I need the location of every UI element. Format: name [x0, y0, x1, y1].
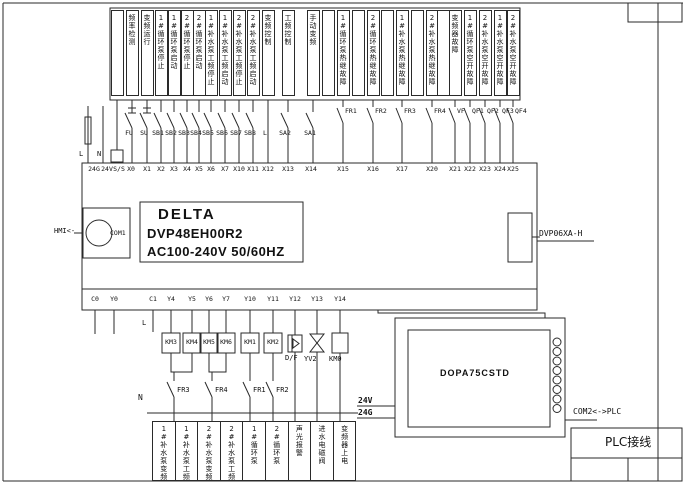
- input-terminal-label: X15: [333, 166, 353, 173]
- output-signal-label: 声光报警: [295, 425, 305, 457]
- com1-port-icon: [86, 220, 112, 246]
- expansion-module-box: [508, 213, 532, 262]
- signal-cell: 1#补水泵工频启动: [219, 10, 232, 96]
- switch-contact-icon: [246, 113, 253, 128]
- panel-key-icon: [553, 395, 561, 403]
- input-device-label: QF4: [515, 108, 527, 115]
- output-signal-cell: 变频器上电: [333, 421, 357, 481]
- panel-key-icon: [553, 405, 561, 413]
- panel-key-icon: [553, 338, 561, 346]
- title-block-title: PLC接线: [605, 436, 651, 448]
- panel-24v-label: 24V: [358, 397, 372, 405]
- valve-icon-bottom: [310, 343, 324, 352]
- switch-contact-icon: [281, 113, 288, 128]
- input-device-label: VF: [457, 108, 465, 115]
- output-signal-label: 1#循环泵: [249, 425, 259, 465]
- signal-cell-label: 频率检测: [127, 14, 137, 46]
- contactor-label: KM3: [162, 339, 180, 346]
- switch-contact-icon: [192, 113, 199, 128]
- switch-contact-icon: [154, 113, 161, 128]
- signal-cell-blank: [411, 10, 424, 96]
- panel-key-icon: [553, 367, 561, 375]
- output-signal-cell: 声光报警: [288, 421, 312, 481]
- output-signal-cell: 2#循环泵: [265, 421, 289, 481]
- panel-key-icon: [553, 348, 561, 356]
- output-n-label: N: [138, 394, 143, 402]
- input-device-label: FR4: [434, 108, 446, 115]
- df-label: D/F: [285, 355, 298, 362]
- input-device-label: QF3: [502, 108, 514, 115]
- output-terminal-label: Y0: [104, 296, 124, 303]
- output-signal-label: 2#补水泵工频: [227, 425, 237, 481]
- signal-cell-label: 2#补水泵工频启动: [248, 14, 258, 86]
- plc-power-rating: AC100-240V 50/60HZ: [147, 245, 285, 258]
- fr-contact-label: FR1: [253, 387, 266, 394]
- switch-contact-icon: [180, 113, 187, 128]
- input-device-label: SA1: [300, 130, 320, 137]
- fr-contact-label: FR3: [177, 387, 190, 394]
- panel-key-icon: [553, 376, 561, 384]
- signal-cell: 2#补水泵工频启动: [247, 10, 260, 96]
- contactor-label: KM5: [200, 339, 218, 346]
- signal-cell: 1#循环泵热继故障: [337, 10, 350, 96]
- alarm-speaker-cone: [293, 339, 299, 348]
- output-signal-label: 1#补水泵工频: [182, 425, 192, 481]
- signal-cell-label: 1#补水泵工频启动: [220, 14, 230, 86]
- output-l-label: L: [142, 320, 146, 327]
- switch-contact-icon: [232, 113, 239, 128]
- signal-cell-label: 2#循环泵停止: [182, 14, 192, 70]
- signal-cell: 变频器故障: [449, 10, 462, 96]
- input-terminal-label: X17: [392, 166, 412, 173]
- plc-panel-cable: [378, 310, 545, 318]
- signal-cell: 1#补水泵热继故障: [396, 10, 409, 96]
- signal-cell: 1#循环泵空开故障: [464, 10, 477, 96]
- panel-24g-label: 24G: [358, 409, 372, 417]
- signal-cell: 变频运行: [141, 10, 154, 96]
- signal-cell-label: 变频运行: [142, 14, 152, 46]
- contactor-label: KM4: [183, 339, 201, 346]
- fr2-contact-icon: [266, 382, 273, 397]
- signal-cell-label: 2#补水泵空开故障: [480, 14, 490, 86]
- output-terminal-label: Y4: [161, 296, 181, 303]
- relay-contact-icon: [396, 108, 402, 123]
- signal-cell-label: 1#循环泵启动: [169, 14, 179, 70]
- fr-contact-label: FR2: [276, 387, 289, 394]
- contactor-label: KM6: [217, 339, 235, 346]
- plc-brand: DELTA: [158, 207, 216, 222]
- signal-cell: 1#循环泵停止: [155, 10, 168, 96]
- signal-cell-label: 变频控制: [263, 14, 273, 46]
- output-terminal-label: C0: [85, 296, 105, 303]
- signal-cell-label: 1#补水泵空开故障: [495, 14, 505, 86]
- input-device-label: QF2: [487, 108, 499, 115]
- relay-contact-icon: [449, 108, 455, 123]
- switch-contact-icon: [204, 113, 211, 128]
- output-terminal-label: Y14: [330, 296, 350, 303]
- output-signal-label: 进水电磁阀: [317, 425, 327, 465]
- output-signal-cell: 1#补水泵变频: [152, 421, 176, 481]
- output-terminal-label: Y10: [240, 296, 260, 303]
- signal-cell: 变频控制: [262, 10, 275, 96]
- fr1-contact-icon: [243, 382, 250, 397]
- top-right-box: [628, 3, 682, 22]
- panel-model: DOPA75CSTD: [440, 369, 510, 378]
- switch-contact-icon: [140, 113, 147, 128]
- signal-cell-label: 1#循环泵热继故障: [338, 14, 348, 86]
- contactor-label: KM1: [241, 339, 259, 346]
- input-device-label: L: [255, 130, 275, 137]
- signal-cell: 2#补水泵空开故障: [507, 10, 520, 96]
- power-n-label: N: [97, 151, 101, 158]
- signal-cell: 1#补水泵空开故障: [494, 10, 507, 96]
- signal-cell-label: 2#循环泵热继故障: [368, 14, 378, 86]
- ss-block-icon: [111, 150, 123, 162]
- signal-cell-blank: [381, 10, 394, 96]
- signal-cell: 1#循环泵启动: [168, 10, 181, 96]
- signal-cell-label: 2#循环泵启动: [194, 14, 204, 70]
- output-signal-cell: 2#补水泵变频: [197, 421, 221, 481]
- yv2-label: YV2: [304, 356, 317, 363]
- signal-cell: 频率检测: [126, 10, 139, 96]
- fr-contact-label: FR4: [215, 387, 228, 394]
- signal-cell-label: 2#补水泵空开故障: [508, 14, 518, 86]
- output-terminal-label: Y7: [216, 296, 236, 303]
- signal-cell-label: 1#补水泵工频停止: [206, 14, 216, 86]
- relay-contact-icon: [367, 108, 373, 123]
- signal-cell-label: 手动变频: [308, 14, 318, 46]
- hmi-label: HMI<-: [54, 228, 75, 235]
- plc-wiring-diagram: HMI<- COM1 DELTA DVP48EH00R2 AC100-240V …: [0, 0, 685, 484]
- signal-cell-blank: [322, 10, 335, 96]
- signal-cell: 1#补水泵工频停止: [205, 10, 218, 96]
- relay-contact-icon: [426, 108, 432, 123]
- signal-cell-label: 变频器故障: [450, 14, 460, 54]
- km3-km4-link: [171, 353, 192, 372]
- output-signal-cell: 1#循环泵: [242, 421, 266, 481]
- signal-cell-label: 2#补水泵热继故障: [427, 14, 437, 86]
- switch-contact-icon: [167, 113, 174, 128]
- output-signal-label: 1#补水泵变频: [159, 425, 169, 481]
- contactor-label: KM2: [264, 339, 282, 346]
- com1-label: COM1: [110, 230, 126, 237]
- plc-model: DVP48EH00R2: [147, 227, 243, 240]
- km0-label: KM0: [329, 356, 342, 363]
- input-device-label: SA2: [275, 130, 295, 137]
- output-terminal-label: Y13: [307, 296, 327, 303]
- power-l-label: L: [79, 151, 83, 158]
- km0-box: [332, 333, 348, 353]
- relay-contact-icon: [337, 108, 343, 123]
- expansion-module-label: DVP06XA-H: [539, 230, 582, 238]
- valve-icon-top: [310, 334, 324, 343]
- input-terminal-label: X14: [301, 166, 321, 173]
- switch-contact-icon: [125, 113, 132, 128]
- input-device-label: QF1: [472, 108, 484, 115]
- signal-cell-label: 1#补水泵热继故障: [397, 14, 407, 86]
- output-signal-label: 2#补水泵变频: [204, 425, 214, 481]
- output-signal-cell: 2#补水泵工频: [220, 421, 244, 481]
- signal-cell-label: 1#循环泵空开故障: [465, 14, 475, 86]
- output-terminal-label: Y12: [285, 296, 305, 303]
- switch-contact-icon: [218, 113, 225, 128]
- input-device-label: FR3: [404, 108, 416, 115]
- switch-contact-icon: [306, 113, 313, 128]
- signal-cell: 2#补水泵空开故障: [479, 10, 492, 96]
- alarm-speaker-icon: [288, 335, 302, 352]
- input-terminal-label: X20: [422, 166, 442, 173]
- signal-cell-label: 1#循环泵停止: [156, 14, 166, 70]
- signal-cell-label: 工频控制: [283, 14, 293, 46]
- signal-cell-label: 2#补水泵工频停止: [234, 14, 244, 86]
- fr3-contact-icon: [167, 382, 174, 397]
- signal-cell: 工频控制: [282, 10, 295, 96]
- input-device-label: FR2: [375, 108, 387, 115]
- hmi-screen: [408, 330, 550, 427]
- output-signal-label: 变频器上电: [340, 425, 350, 465]
- signal-cell-blank: [111, 10, 124, 96]
- panel-key-icon: [553, 357, 561, 365]
- input-terminal-label: X16: [363, 166, 383, 173]
- input-terminal-label: X12: [258, 166, 278, 173]
- signal-cell: 手动变频: [307, 10, 320, 96]
- output-signal-cell: 1#补水泵工频: [175, 421, 199, 481]
- output-terminal-label: Y11: [263, 296, 283, 303]
- input-device-label: FR1: [345, 108, 357, 115]
- output-terminal-label: C1: [143, 296, 163, 303]
- panel-key-icon: [553, 386, 561, 394]
- km5-km6-link: [209, 353, 226, 372]
- input-terminal-label: X25: [503, 166, 523, 173]
- output-signal-label: 2#循环泵: [272, 425, 282, 465]
- fr4-contact-icon: [205, 382, 212, 397]
- com2-label: COM2<->PLC: [573, 408, 621, 416]
- signal-cell-blank: [352, 10, 365, 96]
- signal-cell: 2#循环泵热继故障: [367, 10, 380, 96]
- input-terminal-label: X13: [278, 166, 298, 173]
- signal-cell: 2#补水泵工频停止: [233, 10, 246, 96]
- output-signal-cell: 进水电磁阀: [310, 421, 334, 481]
